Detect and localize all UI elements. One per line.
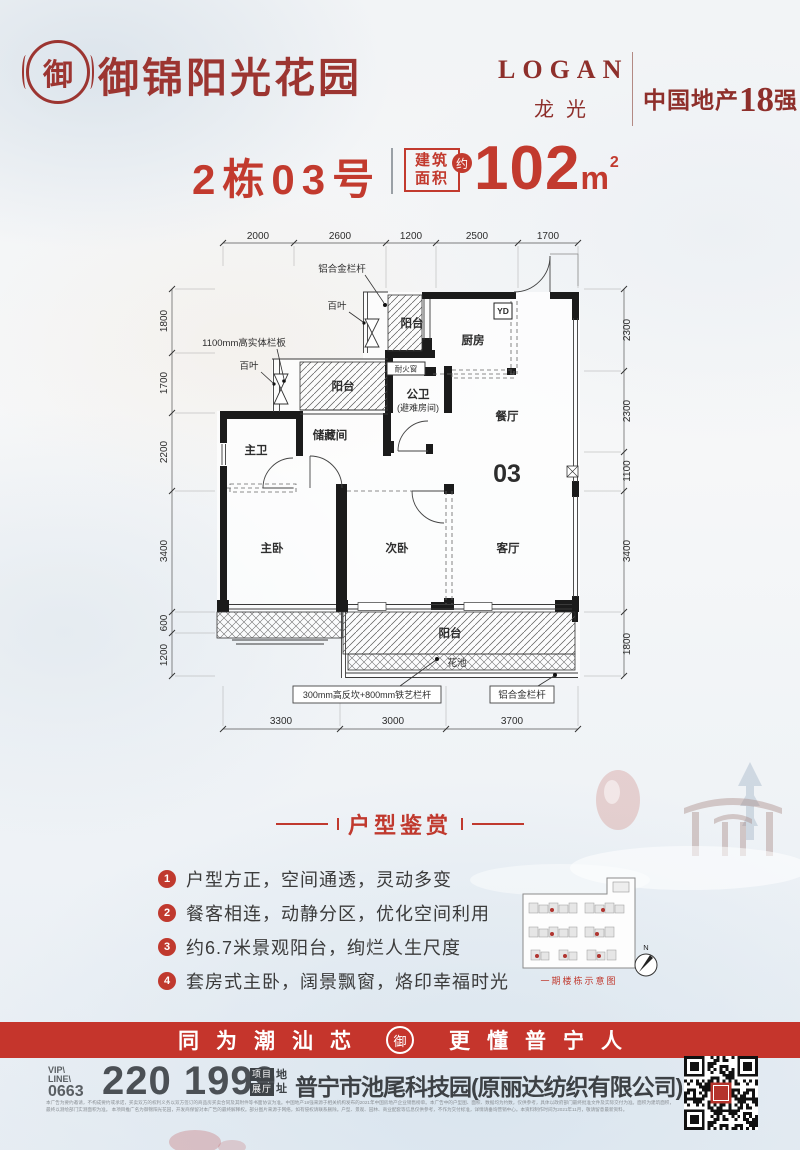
fire-window-label: 耐火窗 (395, 364, 418, 374)
site-map-caption: 一期楼栋示意图 (540, 975, 617, 986)
floor-plan: 2000 2600 1200 2500 1700 1800 1700 2200 … (160, 226, 640, 776)
svg-text:百叶: 百叶 (239, 361, 259, 372)
area-unit: m (580, 160, 609, 196)
features-heading: 户型鉴赏 (0, 808, 800, 840)
svg-text:主卫: 主卫 (245, 443, 268, 457)
flower-decoration (169, 1130, 221, 1150)
project-address: 普宁市池尾科技园(原丽达纺织有限公司) (295, 1068, 682, 1102)
svg-text:花池: 花池 (447, 657, 467, 669)
svg-text:阳台: 阳台 (401, 316, 424, 330)
svg-text:储藏间: 储藏间 (313, 428, 348, 442)
feature-number: 1 (158, 870, 176, 888)
svg-text:阳台: 阳台 (439, 626, 462, 640)
area-label-2: 面积 (415, 170, 449, 188)
feature-text: 约6.7米景观阳台，绚烂人生尺度 (186, 934, 461, 960)
heading-tick-left (337, 818, 339, 830)
feature-text: 餐客相连，动静分区，优化空间利用 (186, 900, 490, 926)
feature-number: 2 (158, 904, 176, 922)
qr-code (684, 1056, 758, 1135)
area-code: 0663 (48, 1087, 84, 1096)
poster: 御 御锦阳光花园 LOGAN 龙光 中国地产18强 2栋03号 建筑 面积 约 … (0, 0, 800, 1150)
approx-badge: 约 (452, 153, 472, 173)
svg-text:1200: 1200 (160, 643, 170, 666)
feature-text: 户型方正，空间通透，灵动多变 (186, 866, 452, 892)
svg-text:(避难房间): (避难房间) (397, 402, 439, 413)
svg-text:1700: 1700 (537, 231, 560, 242)
svg-text:阳台: 阳台 (332, 379, 355, 393)
area-number: 102 (474, 134, 580, 203)
svg-text:1800: 1800 (622, 632, 633, 655)
rank-number: 18 (739, 80, 774, 119)
logan-cn: 龙光 (498, 93, 622, 122)
svg-text:1200: 1200 (400, 231, 423, 242)
feature-number: 3 (158, 938, 176, 956)
slogan-left: 同为潮汕芯 (161, 1025, 368, 1055)
header-divider (632, 52, 633, 126)
banner-seal-icon: 御 (386, 1026, 414, 1054)
svg-text:铝合金栏杆: 铝合金栏杆 (498, 689, 546, 701)
svg-text:3000: 3000 (382, 716, 405, 727)
svg-text:铝合金栏杆: 铝合金栏杆 (318, 263, 366, 275)
svg-text:次卧: 次卧 (386, 541, 409, 555)
rank-prefix: 中国地产 (643, 88, 739, 113)
disclaimer-line-2: 本项目推广名为御锦阳光花园，开发商保留对本广告的最终解释权。部分图片来源于网络，… (112, 1107, 628, 1112)
svg-text:2500: 2500 (466, 231, 489, 242)
svg-text:客厅: 客厅 (496, 541, 520, 555)
svg-text:2300: 2300 (622, 399, 633, 422)
company-rank: 中国地产18强 (643, 80, 798, 120)
svg-text:1800: 1800 (160, 309, 170, 332)
heading-line-left (276, 823, 328, 825)
site-map: N 一期楼栋示意图 (515, 876, 665, 996)
svg-text:N: N (643, 943, 648, 952)
svg-text:厨房: 厨房 (462, 333, 485, 347)
slogan-right: 更懂普宁人 (432, 1025, 639, 1055)
svg-text:主卧: 主卧 (261, 541, 284, 555)
svg-text:1100mm高实体栏板: 1100mm高实体栏板 (202, 337, 286, 349)
badge-addr-2: 址 (276, 1082, 287, 1096)
disclaimer-text: 本广告为要约邀请，不构成要约或承诺，买卖双方的权利义务以双方签订的商品房买卖合同… (46, 1100, 674, 1113)
vip-line-block: VIP\ LINE\ 0663 (48, 1066, 84, 1096)
feature-number: 4 (158, 972, 176, 990)
unit-title: 2栋03号 (192, 146, 381, 207)
svg-text:3700: 3700 (501, 716, 524, 727)
svg-text:2600: 2600 (329, 231, 352, 242)
logan-en: LOGAN (498, 55, 622, 85)
compass-icon: N (635, 943, 657, 976)
title-divider (391, 148, 393, 194)
rank-suffix: 强 (774, 88, 798, 113)
area-sup: 2 (610, 154, 620, 171)
svg-text:2300: 2300 (622, 318, 633, 341)
slogan-banner: 同为潮汕芯 御 更懂普宁人 (0, 1022, 800, 1058)
svg-text:2000: 2000 (247, 231, 270, 242)
svg-text:公卫: 公卫 (407, 388, 430, 401)
svg-text:300mm高反坎+800mm铁艺栏杆: 300mm高反坎+800mm铁艺栏杆 (303, 689, 431, 700)
svg-text:餐厅: 餐厅 (495, 409, 519, 423)
area-label-1: 建筑 (415, 152, 449, 170)
feature-text: 套房式主卧，阔景飘窗，烙印幸福时光 (186, 968, 509, 994)
features-heading-text: 户型鉴赏 (348, 808, 452, 840)
heading-tick-right (461, 818, 463, 830)
svg-text:600: 600 (160, 614, 170, 631)
brand-seal-icon: 御 (26, 40, 90, 104)
yd-label: YD (497, 306, 509, 316)
address-badge: 项目 展厅 地 址 (250, 1068, 287, 1096)
area-value: 102m2 (474, 132, 620, 209)
badge-addr-1: 地 (276, 1068, 287, 1082)
svg-text:3400: 3400 (160, 539, 170, 562)
svg-text:3300: 3300 (270, 716, 293, 727)
unit-number: 03 (493, 460, 521, 488)
svg-text:百叶: 百叶 (327, 301, 347, 312)
area-label-box: 建筑 面积 (404, 148, 460, 192)
svg-text:1700: 1700 (160, 371, 170, 394)
svg-text:3400: 3400 (622, 539, 633, 562)
heading-line-right (472, 823, 524, 825)
svg-text:2200: 2200 (160, 440, 170, 463)
svg-text:1100: 1100 (622, 460, 633, 482)
badge-project: 项目 (250, 1068, 274, 1081)
logan-logo: LOGAN 龙光 (498, 55, 622, 122)
badge-showroom: 展厅 (250, 1083, 274, 1096)
brand-name: 御锦阳光花园 (98, 44, 362, 104)
